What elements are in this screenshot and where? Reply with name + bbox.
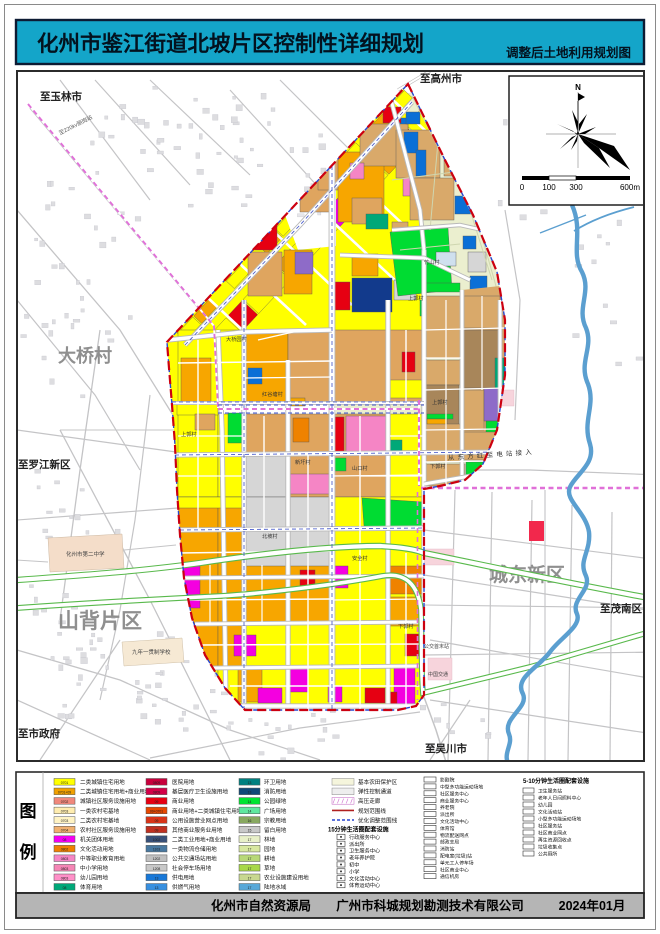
svg-text:大桥村: 大桥村	[58, 345, 112, 366]
svg-text:社区服务站: 社区服务站	[538, 823, 562, 830]
svg-text:09: 09	[155, 800, 159, 804]
svg-text:17: 17	[248, 857, 252, 861]
svg-text:二类工业用地+商业用地: 二类工业用地+商业用地	[172, 835, 232, 843]
svg-text:商业用地: 商业用地	[172, 797, 195, 805]
svg-text:0802: 0802	[61, 848, 69, 852]
svg-text:17: 17	[248, 848, 252, 852]
svg-text:弹性控制通道: 弹性控制通道	[358, 788, 392, 796]
svg-text:社区服务中心: 社区服务中心	[440, 790, 469, 797]
svg-text:大桥园村: 大桥园村	[226, 335, 247, 343]
svg-text:09: 09	[155, 829, 159, 833]
svg-text:1002: 1002	[153, 838, 161, 842]
svg-text:二类城镇住宅用地: 二类城镇住宅用地	[80, 778, 125, 786]
svg-text:山口村: 山口村	[352, 464, 368, 472]
svg-text:2024年01月: 2024年01月	[559, 898, 626, 913]
svg-text:例: 例	[20, 842, 37, 862]
svg-text:17: 17	[248, 838, 252, 842]
svg-text:小学: 小学	[349, 867, 359, 875]
svg-text:文化活动用地: 文化活动用地	[80, 845, 114, 853]
svg-text:配电室(垃圾)站: 配电室(垃圾)站	[440, 853, 472, 860]
svg-text:公共厕所: 公共厕所	[538, 851, 557, 858]
svg-text:13: 13	[248, 790, 252, 794]
svg-text:通信机房: 通信机房	[440, 873, 459, 880]
svg-text:单元工人停车场: 单元工人停车场	[440, 859, 474, 866]
svg-text:16: 16	[248, 819, 252, 823]
svg-text:图: 图	[20, 802, 37, 821]
svg-text:养老院: 养老院	[440, 804, 455, 811]
svg-text:文化活动中心: 文化活动中心	[349, 874, 380, 882]
svg-text:0701: 0701	[61, 781, 69, 785]
svg-text:北坡村: 北坡村	[262, 532, 278, 540]
svg-text:公园绿地: 公园绿地	[264, 797, 287, 805]
svg-text:08: 08	[63, 838, 67, 842]
svg-text:一类农村宅基地: 一类农村宅基地	[80, 807, 120, 815]
svg-text:红谷塘村: 红谷塘村	[262, 390, 283, 398]
svg-text:农村社区服务设施用地: 农村社区服务设施用地	[80, 826, 136, 834]
svg-text:下郭村: 下郭村	[430, 462, 446, 470]
svg-text:新圩村: 新圩村	[295, 458, 311, 466]
svg-text:14: 14	[248, 800, 252, 804]
svg-text:0: 0	[520, 183, 525, 192]
svg-text:邮政支局: 邮政支局	[440, 839, 459, 846]
svg-text:09+0701: 09+0701	[150, 809, 163, 813]
svg-text:17: 17	[248, 886, 252, 890]
svg-text:1202: 1202	[153, 857, 161, 861]
svg-text:公用设施营业网点用地: 公用设施营业网点用地	[172, 816, 228, 824]
svg-text:影剧院: 影剧院	[440, 777, 455, 784]
svg-text:至罗江新区: 至罗江新区	[18, 458, 71, 471]
svg-text:中型多功能运动场地: 中型多功能运动场地	[440, 784, 483, 791]
svg-text:山背片区: 山背片区	[58, 609, 142, 633]
svg-text:消防用地: 消防用地	[264, 788, 287, 796]
svg-text:派出所: 派出所	[440, 811, 455, 818]
svg-text:卫生服务中心: 卫生服务中心	[349, 847, 380, 855]
svg-text:化州市第二中学: 化州市第二中学	[66, 550, 105, 558]
svg-text:供燃气用地: 供燃气用地	[172, 883, 200, 891]
svg-text:0703: 0703	[61, 809, 69, 813]
svg-text:陆地水域: 陆地水域	[264, 883, 287, 891]
svg-text:15: 15	[248, 829, 252, 833]
svg-text:垃圾收集点: 垃圾收集点	[538, 844, 562, 851]
svg-text:行政服务中心: 行政服务中心	[349, 833, 380, 841]
svg-text:消防站: 消防站	[440, 846, 455, 853]
svg-text:1208: 1208	[153, 867, 161, 871]
svg-text:农业设施建设用地: 农业设施建设用地	[264, 874, 309, 882]
svg-text:城镇社区服务设施用地: 城镇社区服务设施用地	[80, 797, 136, 805]
svg-text:老年人日间照料中心: 老年人日间照料中心	[538, 795, 581, 802]
svg-text:优化调整范围线: 优化调整范围线	[358, 816, 398, 824]
svg-text:至高州市: 至高州市	[420, 72, 462, 85]
svg-text:0803: 0803	[61, 867, 69, 871]
svg-text:13: 13	[248, 781, 252, 785]
svg-text:商业用地+二类城镇住宅用地: 商业用地+二类城镇住宅用地	[172, 807, 243, 815]
svg-text:300: 300	[569, 183, 583, 192]
svg-text:文化活动中心: 文化活动中心	[440, 818, 469, 825]
svg-text:09: 09	[155, 819, 159, 823]
svg-text:其他商业服务业用地: 其他商业服务业用地	[172, 826, 223, 834]
svg-text:广州市科城规划勘测技术有限公司: 广州市科城规划勘测技术有限公司	[336, 898, 524, 913]
svg-text:至市政府: 至市政府	[18, 727, 60, 740]
svg-text:林地: 林地	[264, 835, 276, 843]
svg-text:体育馆: 体育馆	[440, 825, 455, 832]
svg-text:13: 13	[155, 876, 159, 880]
svg-text:0803: 0803	[61, 857, 69, 861]
svg-text:老年养护院: 老年养护院	[349, 854, 376, 862]
svg-text:留白用地: 留白用地	[264, 826, 287, 834]
svg-text:1103: 1103	[153, 848, 160, 852]
svg-text:化州市自然资源局: 化州市自然资源局	[211, 898, 311, 913]
svg-text:14: 14	[248, 809, 252, 813]
svg-text:基层医疗卫生设施用地: 基层医疗卫生设施用地	[172, 788, 228, 796]
svg-text:至吴川市: 至吴川市	[425, 742, 467, 755]
svg-text:公共交通场站用地: 公共交通场站用地	[172, 855, 217, 863]
svg-text:宗教用地: 宗教用地	[264, 816, 287, 824]
svg-text:0704: 0704	[61, 829, 69, 833]
svg-text:公交首末站: 公交首末站	[424, 643, 449, 650]
svg-text:派出所: 派出所	[349, 840, 365, 848]
svg-text:17: 17	[248, 876, 252, 880]
svg-text:医院用地: 医院用地	[172, 778, 195, 786]
svg-text:上郭村: 上郭村	[408, 294, 424, 302]
svg-text:社区商业中心: 社区商业中心	[440, 866, 469, 873]
svg-text:社区商业网点: 社区商业网点	[538, 830, 567, 837]
svg-text:13: 13	[155, 886, 159, 890]
svg-text:基本农田保护区: 基本农田保护区	[358, 778, 398, 786]
svg-text:供电用地: 供电用地	[172, 874, 195, 882]
svg-text:15分钟生活圈配套设施: 15分钟生活圈配套设施	[328, 825, 389, 833]
svg-text:中小学用地: 中小学用地	[80, 864, 108, 872]
svg-text:九年一贯制学校: 九年一贯制学校	[132, 648, 171, 656]
svg-text:环卫用地: 环卫用地	[264, 778, 287, 786]
svg-text:卫生服务站: 卫生服务站	[538, 788, 562, 795]
svg-text:下郭村: 下郭村	[398, 622, 414, 630]
svg-text:中等职业教育用地: 中等职业教育用地	[80, 855, 125, 863]
svg-text:N: N	[575, 83, 581, 92]
svg-text:调整后土地利用规划图: 调整后土地利用规划图	[506, 45, 631, 60]
svg-text:上郭村: 上郭村	[181, 430, 197, 438]
svg-text:0702: 0702	[61, 800, 69, 804]
svg-text:幼儿园用地: 幼儿园用地	[80, 874, 108, 882]
svg-text:0701+09: 0701+09	[58, 790, 71, 794]
svg-text:初中: 初中	[349, 860, 359, 868]
svg-text:至茂南区: 至茂南区	[600, 602, 642, 615]
svg-text:0809: 0809	[153, 790, 161, 794]
svg-text:机关团体用地: 机关团体用地	[80, 835, 114, 843]
svg-text:17: 17	[248, 867, 252, 871]
svg-text:至玉林市: 至玉林市	[40, 90, 82, 103]
svg-text:广场用地: 广场用地	[264, 807, 287, 815]
svg-text:文化活动站: 文化活动站	[538, 809, 562, 816]
svg-text:体育运动中心: 体育运动中心	[349, 881, 380, 889]
svg-text:08: 08	[63, 886, 67, 890]
svg-text:小型多功能运动场地: 小型多功能运动场地	[538, 816, 581, 823]
svg-text:社会停车场用地: 社会停车场用地	[172, 864, 212, 872]
svg-text:商业服务中心: 商业服务中心	[440, 797, 469, 804]
svg-text:0809: 0809	[153, 781, 161, 785]
svg-text:100: 100	[542, 183, 556, 192]
svg-text:幼儿园: 幼儿园	[538, 802, 553, 809]
svg-text:0703: 0703	[61, 819, 69, 823]
svg-text:竹山村: 竹山村	[424, 258, 440, 266]
svg-text:高压走廊: 高压走廊	[358, 797, 381, 805]
svg-text:5-10分钟生活圈配套设施: 5-10分钟生活圈配套设施	[523, 777, 589, 785]
svg-text:安全村: 安全村	[352, 554, 368, 562]
svg-text:中国交通: 中国交通	[428, 671, 448, 678]
svg-text:一类物流仓储用地: 一类物流仓储用地	[172, 845, 217, 853]
svg-text:二类农村宅基地: 二类农村宅基地	[80, 816, 120, 824]
svg-text:园地: 园地	[264, 845, 276, 853]
svg-text:耕地: 耕地	[264, 855, 276, 863]
svg-text:0803: 0803	[61, 876, 69, 880]
svg-text:二类城镇住宅用地+商业用地: 二类城镇住宅用地+商业用地	[80, 788, 151, 796]
svg-text:规划范围线: 规划范围线	[358, 807, 386, 815]
svg-text:体育用地: 体育用地	[80, 883, 103, 891]
svg-text:草地: 草地	[264, 864, 276, 872]
svg-text:化州市鉴江街道北坡片区控制性详细规划: 化州市鉴江街道北坡片区控制性详细规划	[37, 31, 424, 56]
svg-text:物流配送网点: 物流配送网点	[440, 832, 469, 839]
svg-text:600m: 600m	[620, 183, 640, 192]
svg-text:再生资源回收点: 再生资源回收点	[538, 837, 572, 844]
svg-text:上郭村: 上郭村	[432, 398, 448, 406]
